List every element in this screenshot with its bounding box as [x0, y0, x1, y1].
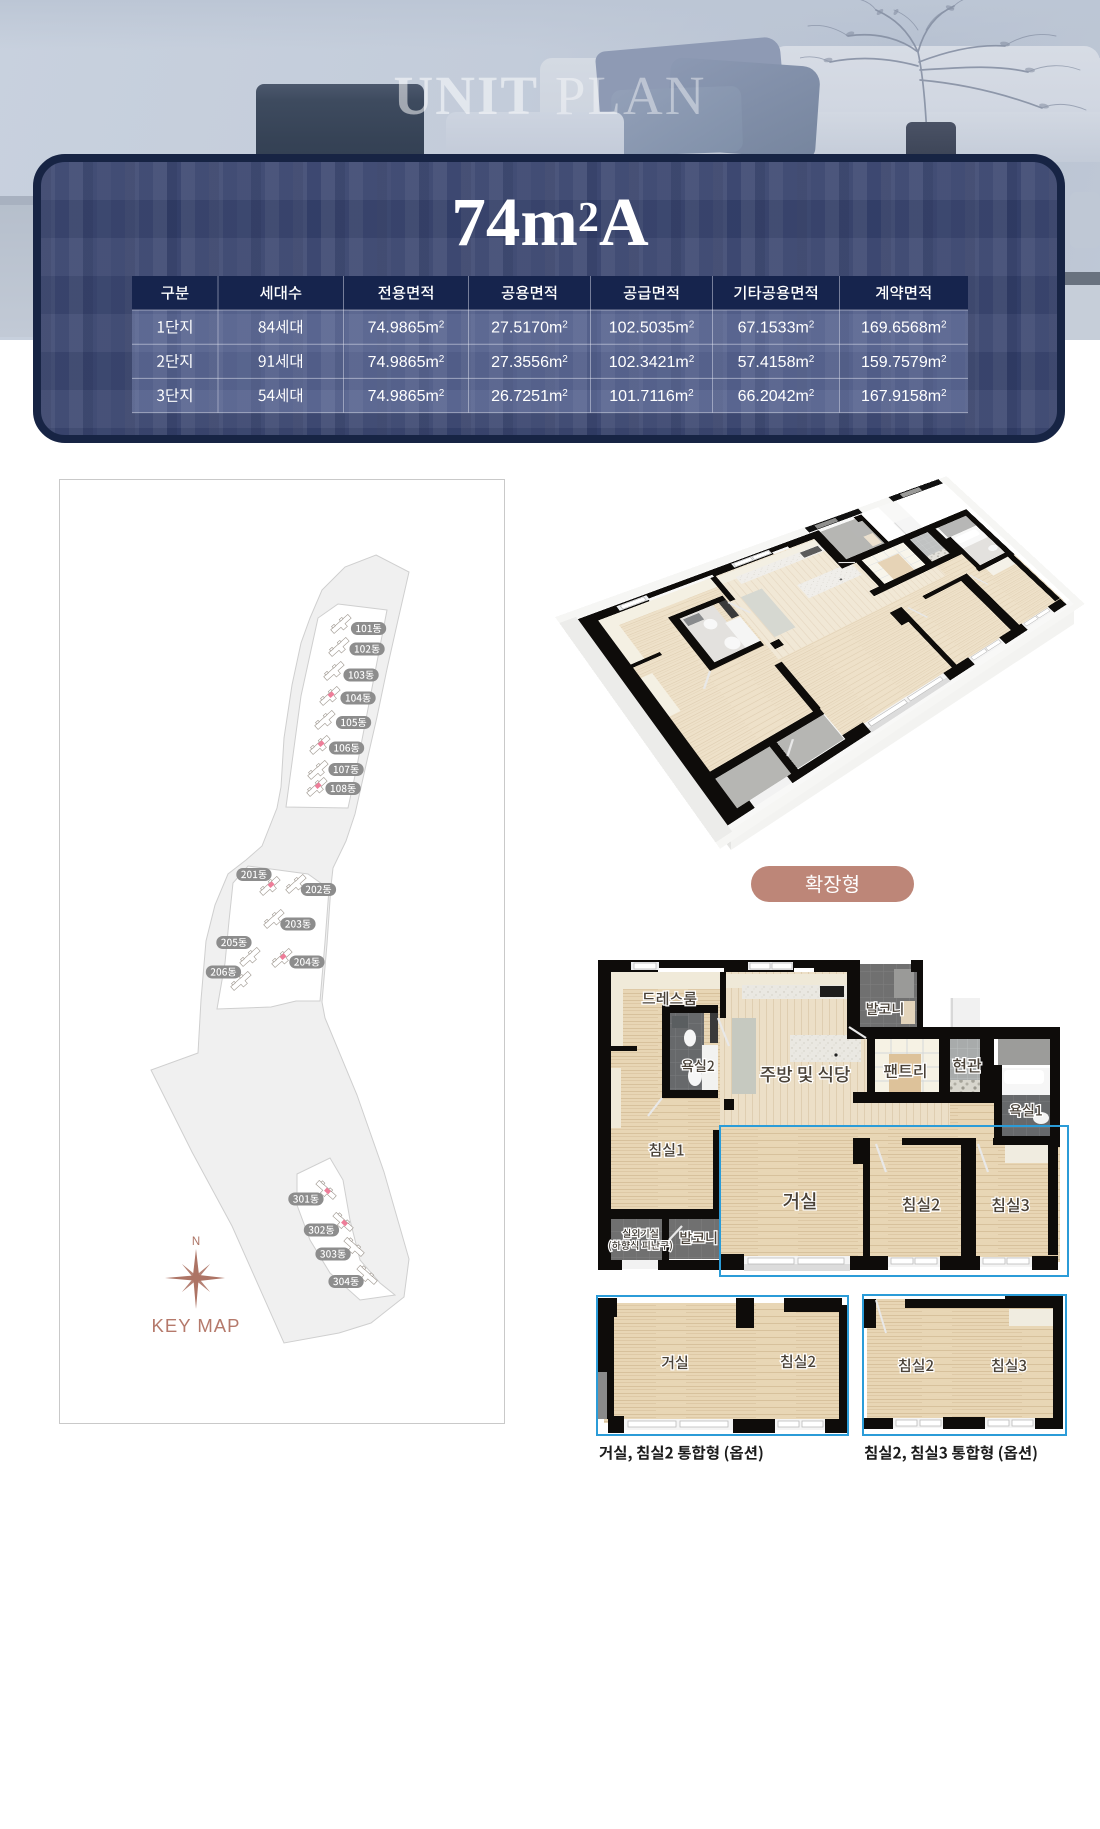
svg-text:159.7579m2: 159.7579m2 — [860, 354, 946, 371]
svg-text:167.9158m2: 167.9158m2 — [860, 388, 946, 405]
svg-text:74.9865m2: 74.9865m2 — [367, 388, 444, 405]
svg-text:74.9865m2: 74.9865m2 — [367, 320, 444, 337]
svg-text:169.6568m2: 169.6568m2 — [860, 320, 946, 337]
svg-text:67.1533m2: 67.1533m2 — [737, 320, 814, 337]
svg-text:57.4158m2: 57.4158m2 — [737, 354, 814, 371]
svg-text:26.7251m2: 26.7251m2 — [491, 388, 568, 405]
svg-text:N: N — [192, 1236, 200, 1248]
svg-text:27.5170m2: 27.5170m2 — [491, 320, 568, 337]
svg-text:66.2042m2: 66.2042m2 — [737, 388, 814, 405]
svg-text:101.7116m2: 101.7116m2 — [609, 388, 694, 405]
svg-text:KEY MAP: KEY MAP — [152, 1315, 241, 1336]
svg-text:102.3421m2: 102.3421m2 — [608, 354, 694, 371]
svg-text:74.9865m2: 74.9865m2 — [367, 354, 444, 371]
svg-text:27.3556m2: 27.3556m2 — [491, 354, 568, 371]
svg-text:102.5035m2: 102.5035m2 — [608, 320, 694, 337]
